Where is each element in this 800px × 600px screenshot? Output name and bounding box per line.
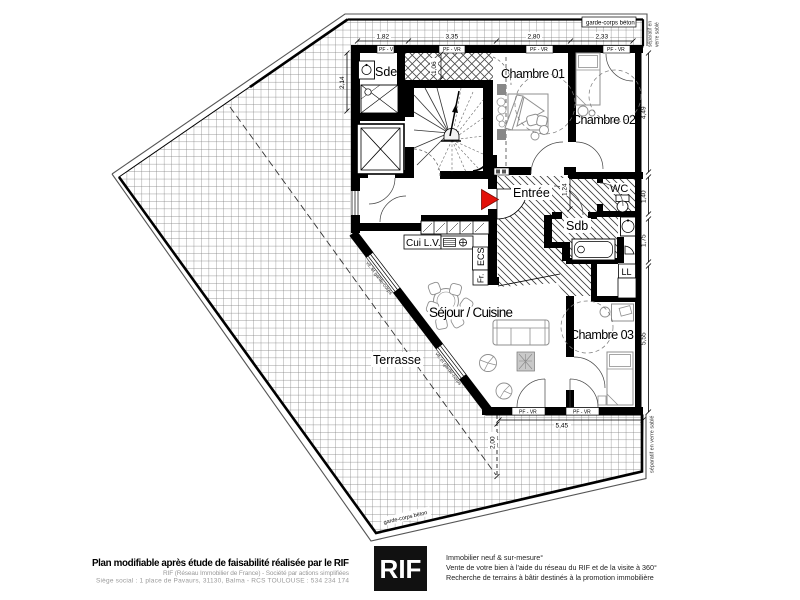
svg-text:séparatif en: séparatif en — [648, 21, 654, 47]
svg-text:Sde: Sde — [375, 65, 397, 79]
svg-text:3,35: 3,35 — [446, 34, 459, 41]
svg-text:ECS: ECS — [476, 247, 486, 266]
svg-text:verre sablé: verre sablé — [655, 22, 661, 47]
svg-text:RIF (Réseau Immobilier de Fran: RIF (Réseau Immobilier de France) - Soci… — [163, 570, 350, 577]
svg-text:Recherche de terrains à bâtir: Recherche de terrains à bâtir destinés à… — [446, 573, 654, 582]
svg-text:Sdb: Sdb — [566, 219, 588, 233]
svg-text:Entrée: Entrée — [513, 186, 550, 200]
svg-text:Immobilier neuf & sur-mesure°: Immobilier neuf & sur-mesure° — [446, 553, 543, 562]
svg-text:Fr.: Fr. — [477, 274, 486, 283]
svg-text:1,75: 1,75 — [641, 234, 648, 247]
svg-text:Terrasse: Terrasse — [373, 353, 421, 367]
svg-text:LL: LL — [622, 267, 632, 277]
svg-text:4,49: 4,49 — [641, 106, 648, 119]
svg-text:2,33: 2,33 — [596, 34, 609, 41]
svg-text:PF - V: PF - V — [379, 47, 394, 53]
svg-text:Siège social : 1 place de Pava: Siège social : 1 place de Pavaurs, 31130… — [96, 578, 349, 585]
svg-text:5,45: 5,45 — [556, 423, 569, 430]
svg-text:RIF: RIF — [380, 554, 422, 584]
svg-text:1,82: 1,82 — [377, 34, 390, 41]
svg-text:Plan modifiable après étude de: Plan modifiable après étude de faisabili… — [92, 558, 349, 569]
svg-text:PF - VR: PF - VR — [443, 47, 461, 53]
svg-text:PF - VR: PF - VR — [519, 410, 537, 416]
svg-text:PF - VR: PF - VR — [573, 410, 591, 416]
svg-text:1,24: 1,24 — [562, 183, 569, 196]
svg-text:PF - VR: PF - VR — [607, 47, 625, 53]
svg-text:2,80: 2,80 — [528, 34, 541, 41]
svg-text:Vente de votre bien à l'aide d: Vente de votre bien à l'aide du réseau d… — [446, 563, 657, 572]
svg-text:1,40: 1,40 — [641, 190, 648, 203]
svg-text:5,55: 5,55 — [641, 332, 648, 345]
svg-text:2,00: 2,00 — [490, 436, 497, 449]
svg-text:2,14: 2,14 — [339, 76, 346, 89]
svg-text:séparatif en verre sablé: séparatif en verre sablé — [650, 416, 656, 473]
svg-text:Chambre 03: Chambre 03 — [570, 328, 634, 342]
svg-text:Cui L.V.: Cui L.V. — [406, 238, 441, 249]
svg-text:garde-corps béton: garde-corps béton — [586, 21, 635, 27]
svg-text:PF - VR: PF - VR — [530, 47, 548, 53]
svg-text:Séjour / Cuisine: Séjour / Cuisine — [429, 305, 513, 320]
svg-text:1,06: 1,06 — [431, 61, 438, 74]
